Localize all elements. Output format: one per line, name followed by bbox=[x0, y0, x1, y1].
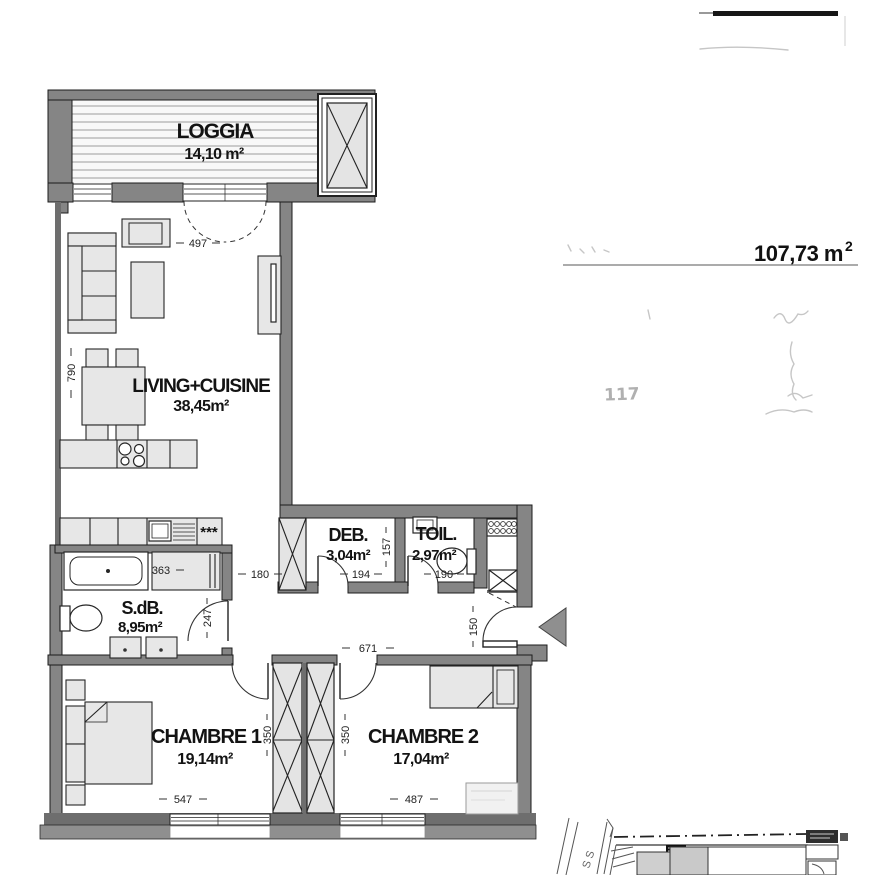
bottom-wall-outer bbox=[40, 825, 536, 839]
dim-bath-counter: 363 bbox=[152, 565, 170, 577]
floorplan-scan: LOGGIA 14,10 m² bbox=[0, 0, 870, 875]
loggia-area: 14,10 m² bbox=[184, 146, 244, 163]
loggia-label: LOGGIA bbox=[177, 120, 255, 143]
chambre1-area: 19,14m² bbox=[177, 751, 233, 768]
bathtub bbox=[64, 552, 148, 590]
dim-chambre2-width: 487 bbox=[405, 794, 423, 806]
shaft-right bbox=[487, 519, 517, 591]
chair bbox=[116, 349, 138, 367]
handwritten-note: 117 bbox=[604, 384, 640, 405]
bath-sink bbox=[110, 637, 141, 658]
site-mass-3 bbox=[708, 847, 806, 875]
dim-living-depth: 790 bbox=[66, 364, 78, 382]
burner bbox=[135, 445, 144, 454]
sdb-area: 8,95m² bbox=[118, 619, 163, 636]
right-wall-upper bbox=[517, 505, 532, 607]
toil-label: TOIL. bbox=[416, 524, 457, 544]
site-right-room bbox=[808, 861, 836, 875]
loggia-door-swing-left bbox=[184, 201, 225, 242]
window-recess bbox=[170, 826, 270, 838]
site-mass-1 bbox=[637, 852, 670, 875]
loggia-screen bbox=[318, 94, 376, 196]
wardrobe-column bbox=[273, 663, 302, 813]
burner bbox=[121, 457, 129, 465]
toil-area: 2,97m² bbox=[412, 547, 457, 564]
site-dark-block bbox=[806, 830, 838, 843]
living-room: LIVING+CUISINE 38,45m² bbox=[68, 219, 281, 443]
kitchen: *** bbox=[60, 440, 222, 545]
burner bbox=[134, 456, 145, 467]
chambre2-window bbox=[340, 814, 425, 825]
dim-deb-width: 194 bbox=[352, 569, 370, 581]
tv-cabinet bbox=[258, 256, 281, 334]
loggia-window bbox=[73, 184, 112, 201]
boundary-dashdot-line bbox=[614, 834, 806, 837]
dim-entry-door: 150 bbox=[468, 618, 480, 636]
entry-door-leaf bbox=[483, 641, 517, 647]
loggia-bottom-wall-2 bbox=[112, 183, 183, 202]
left-wall-lower bbox=[50, 545, 62, 815]
chambre2-label: CHAMBRE 2 bbox=[368, 726, 479, 748]
floorplan-drawing: LOGGIA 14,10 m² bbox=[0, 0, 870, 875]
total-area-exponent: 2 bbox=[845, 238, 853, 254]
deb-toil-divider bbox=[395, 518, 405, 588]
left-wall-living bbox=[55, 202, 61, 545]
scan-bar bbox=[713, 11, 838, 16]
site-right-room bbox=[806, 845, 838, 859]
nightstand bbox=[66, 785, 85, 805]
site-left-steps bbox=[610, 845, 635, 875]
dim-deb-depth: 157 bbox=[381, 538, 393, 556]
loggia-bottom-wall-1 bbox=[48, 183, 73, 202]
chambre1-door-swing bbox=[232, 663, 268, 699]
loggia-door-swing-right bbox=[225, 201, 266, 242]
bed bbox=[85, 702, 152, 784]
sofa bbox=[68, 233, 116, 333]
dim-chambre1-width: 547 bbox=[174, 794, 192, 806]
double-bed bbox=[66, 680, 152, 805]
sdb-label: S.dB. bbox=[121, 598, 162, 618]
nightstand bbox=[66, 680, 85, 700]
deb-toil-top-wall bbox=[280, 505, 532, 518]
kitchen-counter-sink: *** bbox=[60, 518, 222, 545]
entry-dashed-line bbox=[489, 593, 516, 607]
chair bbox=[86, 349, 108, 367]
coffee-table bbox=[131, 262, 164, 318]
kitchen-counter-cooktop bbox=[60, 440, 197, 468]
hall-bedroom-wall-3 bbox=[377, 655, 532, 665]
toil-tank bbox=[467, 549, 476, 574]
faint-marks-near-total bbox=[568, 245, 609, 253]
bath-sink bbox=[146, 637, 177, 658]
bathroom: S.dB. 8,95m² bbox=[60, 552, 228, 658]
chambre2-door-swing bbox=[340, 663, 376, 699]
loggia-left-wall bbox=[48, 90, 72, 195]
right-wall-lower bbox=[517, 655, 531, 815]
dim-chambre2-door: 350 bbox=[340, 726, 352, 744]
deb-label: DEB. bbox=[328, 525, 367, 545]
site-mass-2 bbox=[670, 847, 708, 875]
wardrobes bbox=[273, 663, 334, 813]
site-small-block bbox=[840, 833, 848, 841]
bath-toilet bbox=[60, 605, 102, 631]
dim-hall-length: 671 bbox=[359, 643, 377, 655]
site-plan: S S bbox=[557, 818, 848, 875]
chambre2-area: 17,04m² bbox=[393, 751, 449, 768]
chambre1-label: CHAMBRE 1 bbox=[151, 726, 262, 748]
chambre1: CHAMBRE 1 19,14m² bbox=[66, 663, 268, 805]
window-recess bbox=[340, 826, 425, 838]
freezer-stars-symbol: *** bbox=[200, 524, 218, 541]
dim-chambre1-door: 350 bbox=[262, 726, 274, 744]
living-area: 38,45m² bbox=[173, 398, 229, 415]
deb-bottom-wall-2 bbox=[348, 582, 408, 593]
single-bed bbox=[430, 666, 518, 708]
entry-door-swing bbox=[483, 607, 517, 641]
wardrobe-divider bbox=[302, 663, 307, 813]
chambre1-window bbox=[170, 814, 270, 825]
toil-bottom-wall bbox=[438, 582, 474, 593]
living-label: LIVING+CUISINE bbox=[132, 376, 270, 397]
street-label: S S bbox=[580, 849, 597, 870]
desk bbox=[466, 783, 518, 814]
living-right-wall bbox=[280, 202, 292, 505]
chambre2: CHAMBRE 2 17,04m² bbox=[340, 663, 518, 814]
dim-toil-width: 190 bbox=[435, 569, 453, 581]
burner bbox=[119, 443, 131, 455]
annotations: 107,73 m 2 117 bbox=[563, 11, 858, 414]
wardrobe-column bbox=[307, 663, 334, 813]
shaft-left bbox=[279, 518, 306, 590]
dim-loggia-door: 497 bbox=[189, 238, 207, 250]
dim-passage: 180 bbox=[251, 569, 269, 581]
armchair bbox=[122, 219, 170, 247]
bottom-wall-inner bbox=[44, 813, 536, 825]
bath-right-wall bbox=[222, 553, 232, 600]
entry-arrow-icon bbox=[539, 608, 566, 646]
handwriting-scribbles bbox=[648, 310, 812, 414]
total-area-value: 107,73 m bbox=[754, 241, 843, 266]
loggia: LOGGIA 14,10 m² bbox=[72, 100, 318, 183]
deb-area: 3,04m² bbox=[326, 547, 371, 564]
dim-bath-door: 247 bbox=[202, 609, 214, 627]
